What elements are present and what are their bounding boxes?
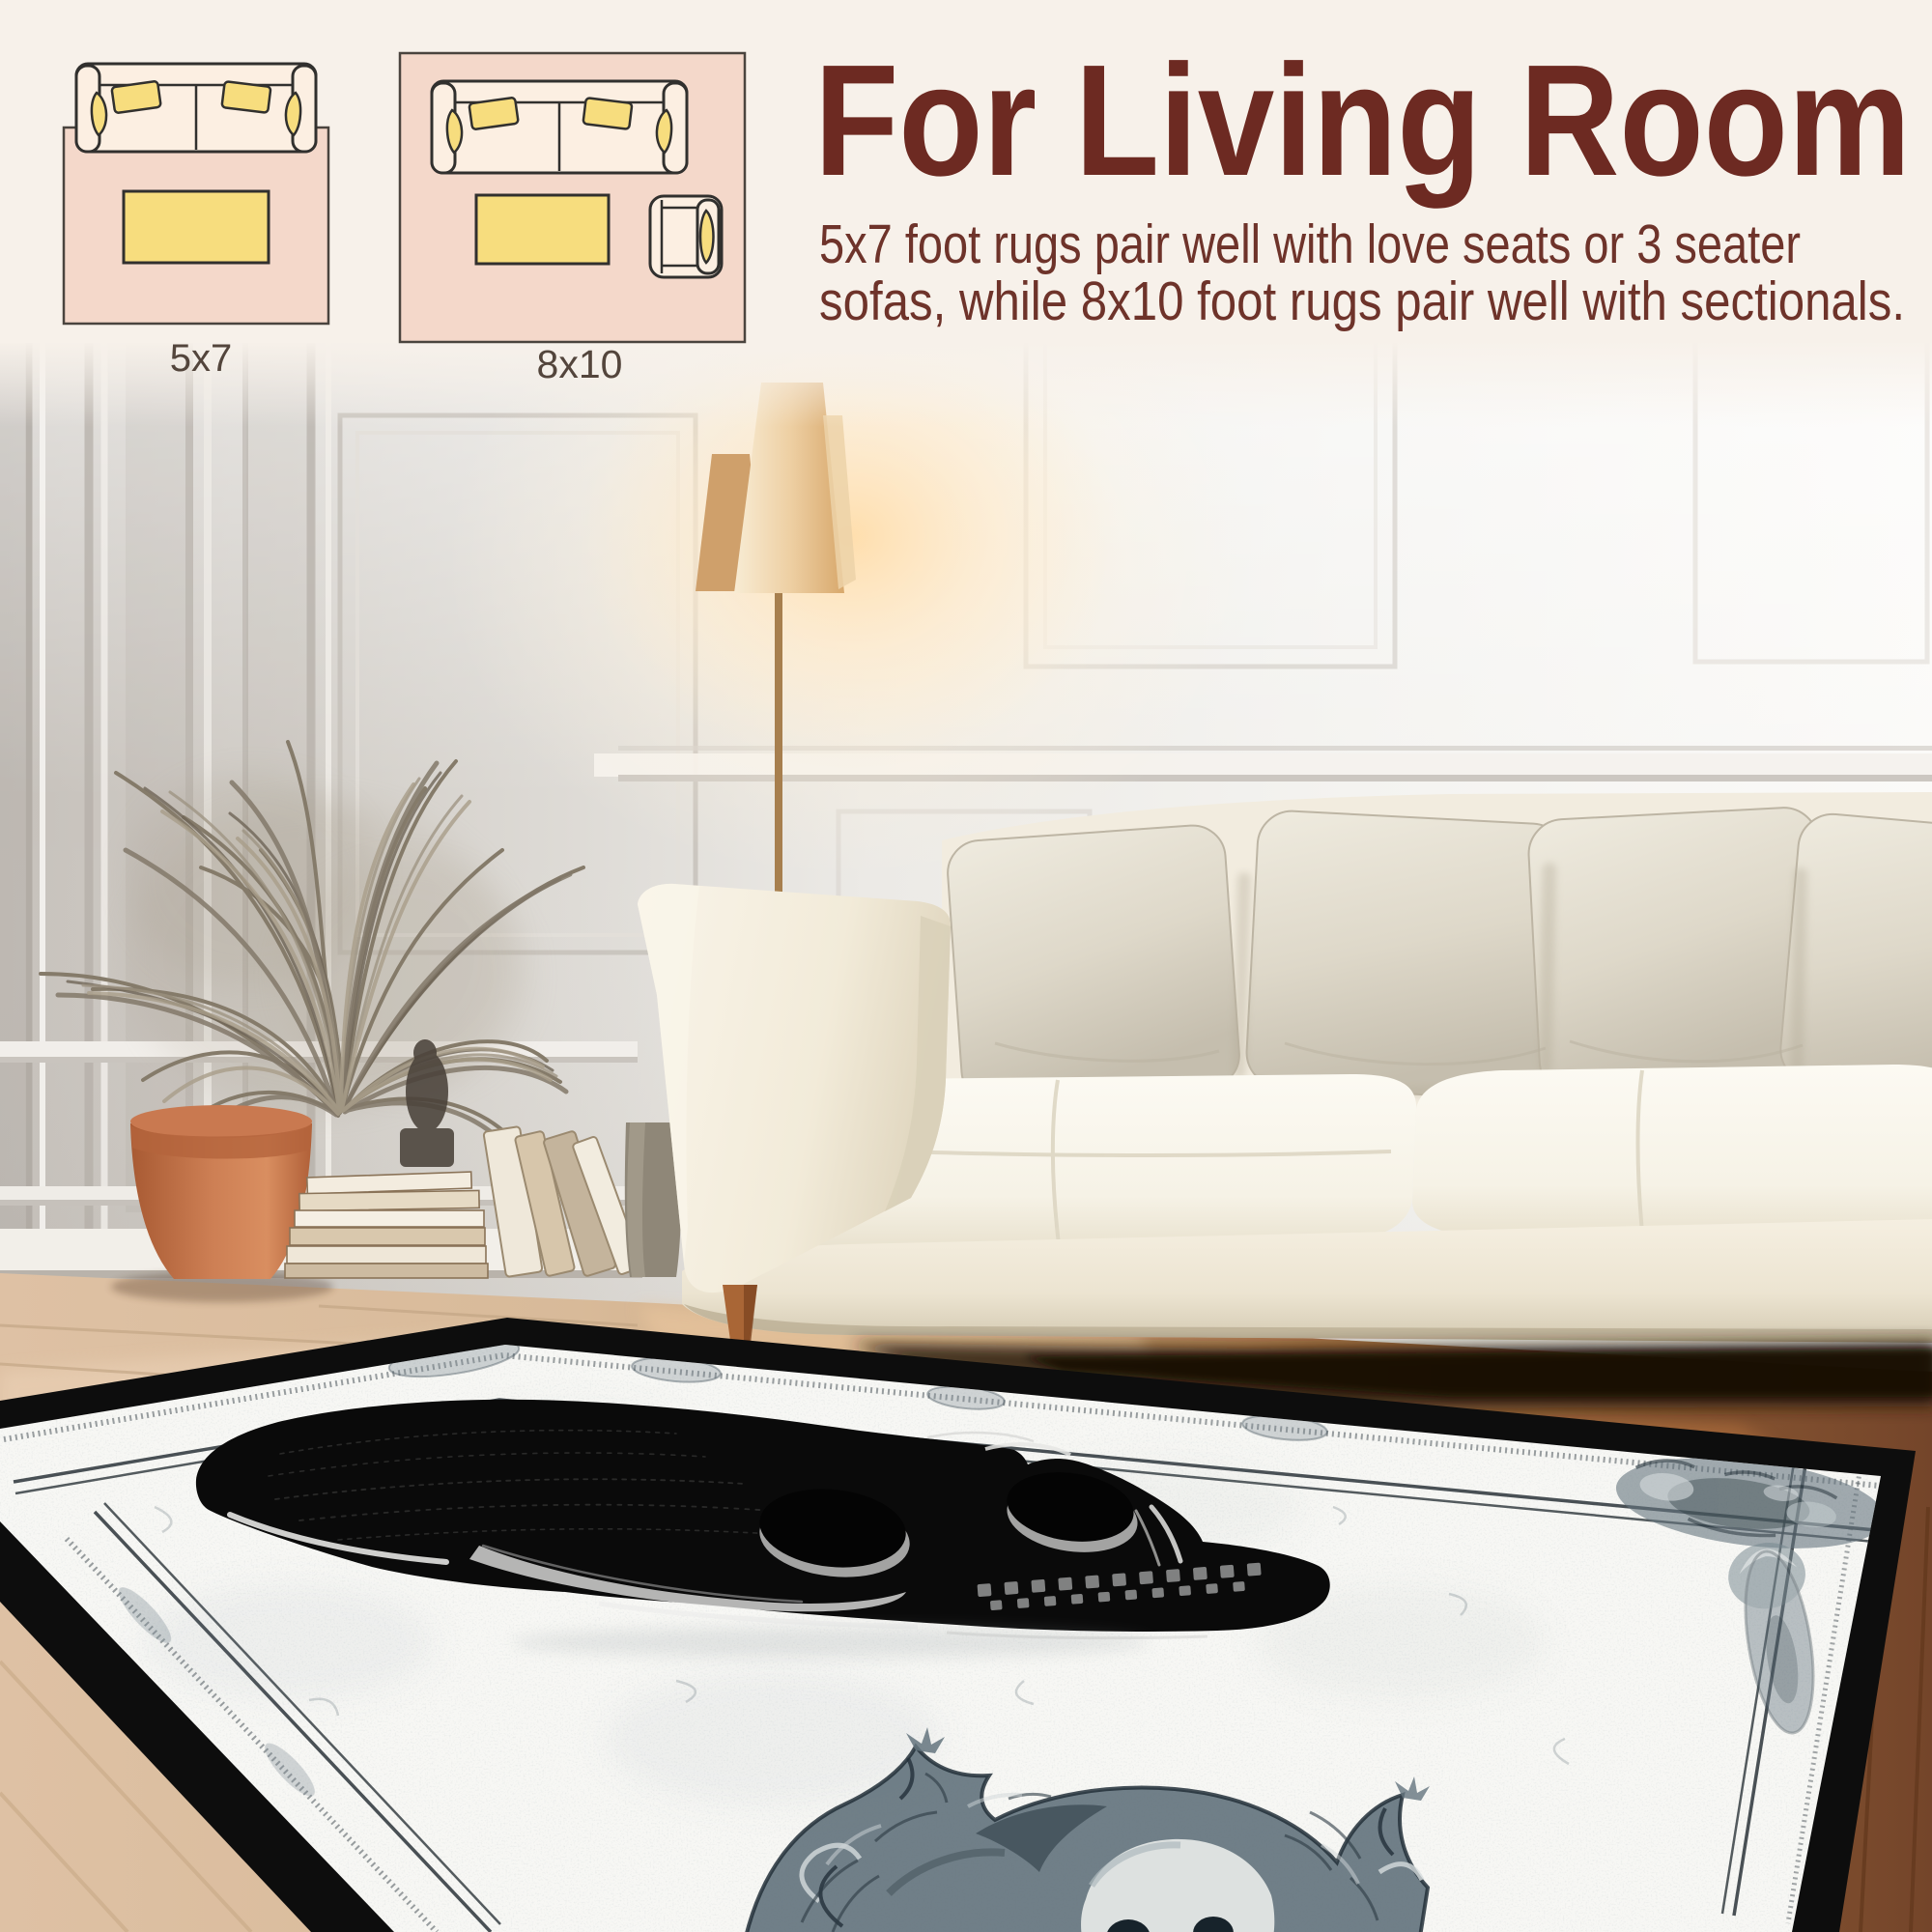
- svg-text:5x7 foot rugs pair well with l: 5x7 foot rugs pair well with love seats …: [819, 213, 1801, 275]
- svg-text:8x10: 8x10: [537, 342, 623, 386]
- svg-text:For Living Room: For Living Room: [814, 32, 1911, 209]
- svg-text:sofas, while 8x10 foot rugs pa: sofas, while 8x10 foot rugs pair well wi…: [819, 270, 1905, 332]
- svg-text:5x7: 5x7: [170, 337, 233, 380]
